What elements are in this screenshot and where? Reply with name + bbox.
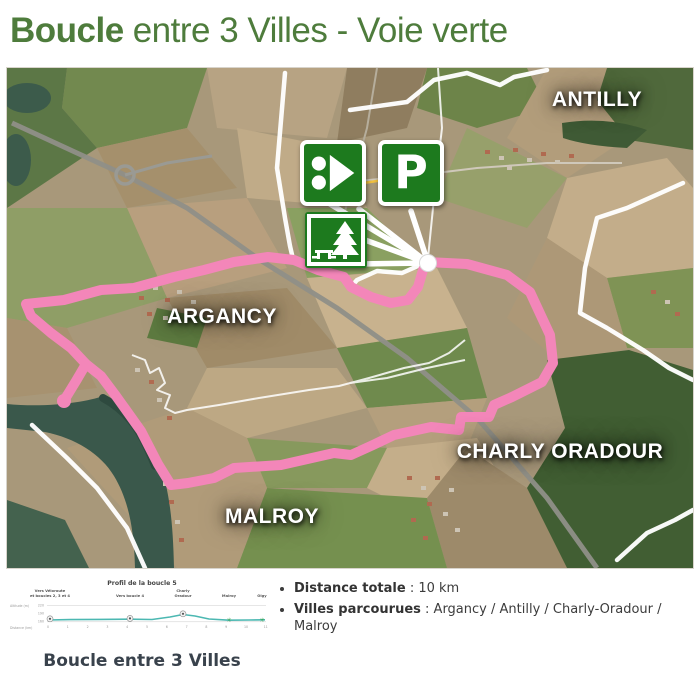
- town-label-charly-oradour: CHARLY ORADOUR: [457, 440, 664, 464]
- xtick-5: 5: [146, 625, 148, 629]
- elevation-profile-chart: Profil de la boucle 5 Vers Véloroute et …: [8, 576, 276, 640]
- xtick-2: 2: [87, 625, 89, 629]
- waypoint-malroy: Malroy: [222, 594, 237, 598]
- page-title-rest: entre 3 Villes - Voie verte: [133, 11, 508, 50]
- profile-yticks: 220 190 160: [38, 604, 44, 624]
- profile-xlabel: Distance (km): [10, 626, 32, 630]
- details-list: Distance totale : 10 km Villes parcourue…: [278, 581, 696, 635]
- waypoint-olgy: Olgy: [257, 594, 267, 598]
- profile-title: Profil de la boucle 5: [107, 580, 176, 587]
- page: Boucleentre 3 Villes - Voie verte: [0, 0, 700, 681]
- waypoint-start-1: Vers Véloroute: [35, 589, 66, 593]
- xtick-0: 0: [47, 625, 49, 629]
- ytick-220: 220: [38, 604, 44, 608]
- page-title: Boucleentre 3 Villes - Voie verte: [10, 8, 700, 54]
- picnic-glyph: [305, 212, 367, 268]
- header: Boucleentre 3 Villes - Voie verte: [0, 0, 700, 66]
- marker-tree-malroy: ✳: [226, 617, 231, 624]
- detail-villages-label: Villes parcourues: [294, 602, 421, 617]
- xtick-11: 11: [264, 625, 268, 629]
- profile-xticks: 0 1 2 3 4 5 6 7 8 9 10 11: [47, 625, 268, 629]
- profile-ylabel: Altitude (m): [10, 604, 29, 608]
- xtick-7: 7: [186, 625, 188, 629]
- parking-icon: P: [378, 140, 444, 206]
- waypoint-start-2: et boucles 2, 3 et 4: [30, 594, 70, 598]
- xtick-3: 3: [106, 625, 108, 629]
- elevation-profile-block: Profil de la boucle 5 Vers Véloroute et …: [8, 576, 276, 671]
- xtick-4: 4: [126, 625, 128, 629]
- detail-distance-sep: :: [406, 581, 419, 596]
- profile-waypoints: Vers Véloroute et boucles 2, 3 et 4 Vers…: [30, 589, 267, 598]
- waypoint-charly-2: Oradour: [174, 594, 191, 598]
- profile-caption: Boucle entre 3 Villes: [8, 651, 276, 671]
- route-start-glyph: [307, 147, 359, 199]
- detail-distance-label: Distance totale: [294, 581, 406, 596]
- route-details: Distance totale : 10 km Villes parcourue…: [278, 576, 696, 671]
- waypoint-charly-1: Charly: [176, 589, 190, 593]
- detail-distance-value: 10 km: [418, 581, 459, 596]
- parking-letter: P: [394, 149, 428, 195]
- xtick-1: 1: [67, 625, 69, 629]
- waypoint-mid: Vers boucle 4: [116, 594, 144, 598]
- town-label-malroy: MALROY: [225, 505, 319, 529]
- picnic-area-icon: [305, 212, 367, 268]
- marker-tree-olgy: ✳: [259, 617, 264, 624]
- ytick-160: 160: [38, 620, 44, 624]
- aerial-map: P ANTILLY ARGANCY CHARLY ORADOUR MALROY: [7, 68, 693, 568]
- town-label-argancy: ARGANCY: [167, 305, 277, 329]
- xtick-8: 8: [205, 625, 207, 629]
- detail-villages: Villes parcourues : Argancy / Antilly / …: [294, 602, 696, 635]
- junction-node: [420, 255, 437, 272]
- town-label-antilly: ANTILLY: [552, 88, 642, 112]
- detail-villages-sep: :: [421, 602, 434, 617]
- ytick-190: 190: [38, 612, 44, 616]
- route-start-icon: [300, 140, 366, 206]
- xtick-6: 6: [166, 625, 168, 629]
- route-spur-end: [57, 394, 71, 408]
- profile-line: [48, 615, 265, 621]
- page-title-bold: Boucle: [10, 11, 124, 50]
- xtick-10: 10: [244, 625, 248, 629]
- footer: Profil de la boucle 5 Vers Véloroute et …: [8, 576, 696, 671]
- detail-distance: Distance totale : 10 km: [294, 581, 696, 597]
- xtick-9: 9: [225, 625, 227, 629]
